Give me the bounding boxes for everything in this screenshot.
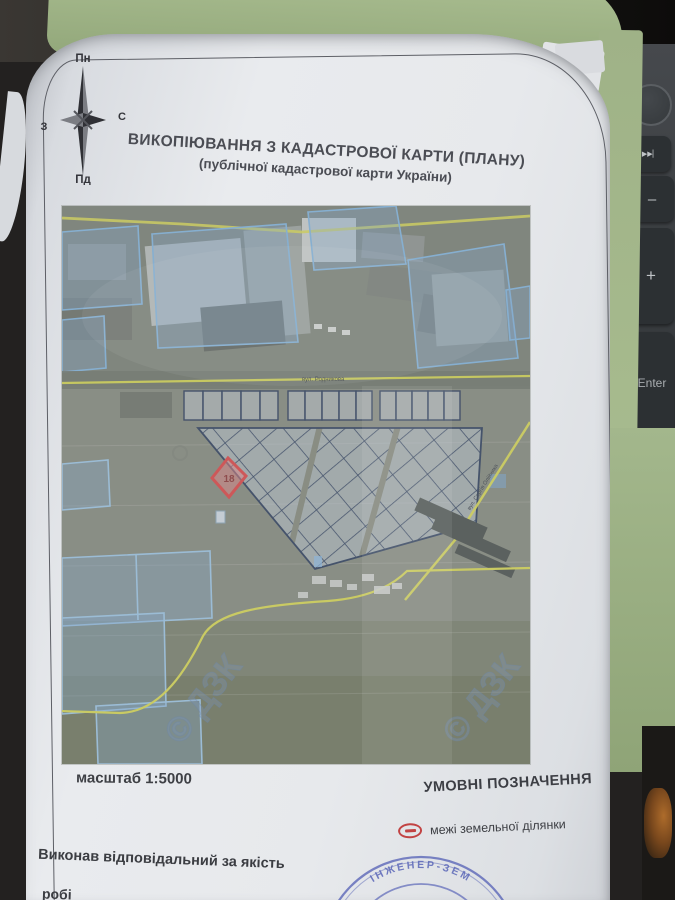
round-stamp: ІНЖЕНЕР-ЗЕМ xyxy=(306,822,536,900)
cadastral-map: вул. Родникова xyxy=(62,206,530,764)
enter-key-label: Enter xyxy=(638,376,667,390)
stamp-arc-text: ІНЖЕНЕР-ЗЕМ xyxy=(368,859,474,885)
executor-line-2: робі xyxy=(42,885,72,900)
desk-shadow-corner xyxy=(642,726,675,900)
background-object xyxy=(644,788,672,858)
compass-north-label: Пн xyxy=(75,53,90,65)
document-page: Пн Пд З С ВИКОПІЮВАННЯ З КАДАСТРОВОЇ КАР… xyxy=(26,34,610,900)
minus-key-label: – xyxy=(648,191,656,208)
next-track-icon: ▶▶▏ xyxy=(642,150,658,158)
svg-text:ІНЖЕНЕР-ЗЕМ: ІНЖЕНЕР-ЗЕМ xyxy=(368,859,474,885)
compass-east-label: С xyxy=(118,111,126,123)
plus-key-label: + xyxy=(646,266,656,286)
compass-south-label: Пд xyxy=(75,174,91,185)
map-scale-label: масштаб 1:5000 xyxy=(76,769,192,787)
photo-scene: ▶▶▏ – + Enter Пн Пд З С ВИКОПІЮВАННЯ З К… xyxy=(0,0,675,900)
compass-west-label: З xyxy=(41,121,48,133)
